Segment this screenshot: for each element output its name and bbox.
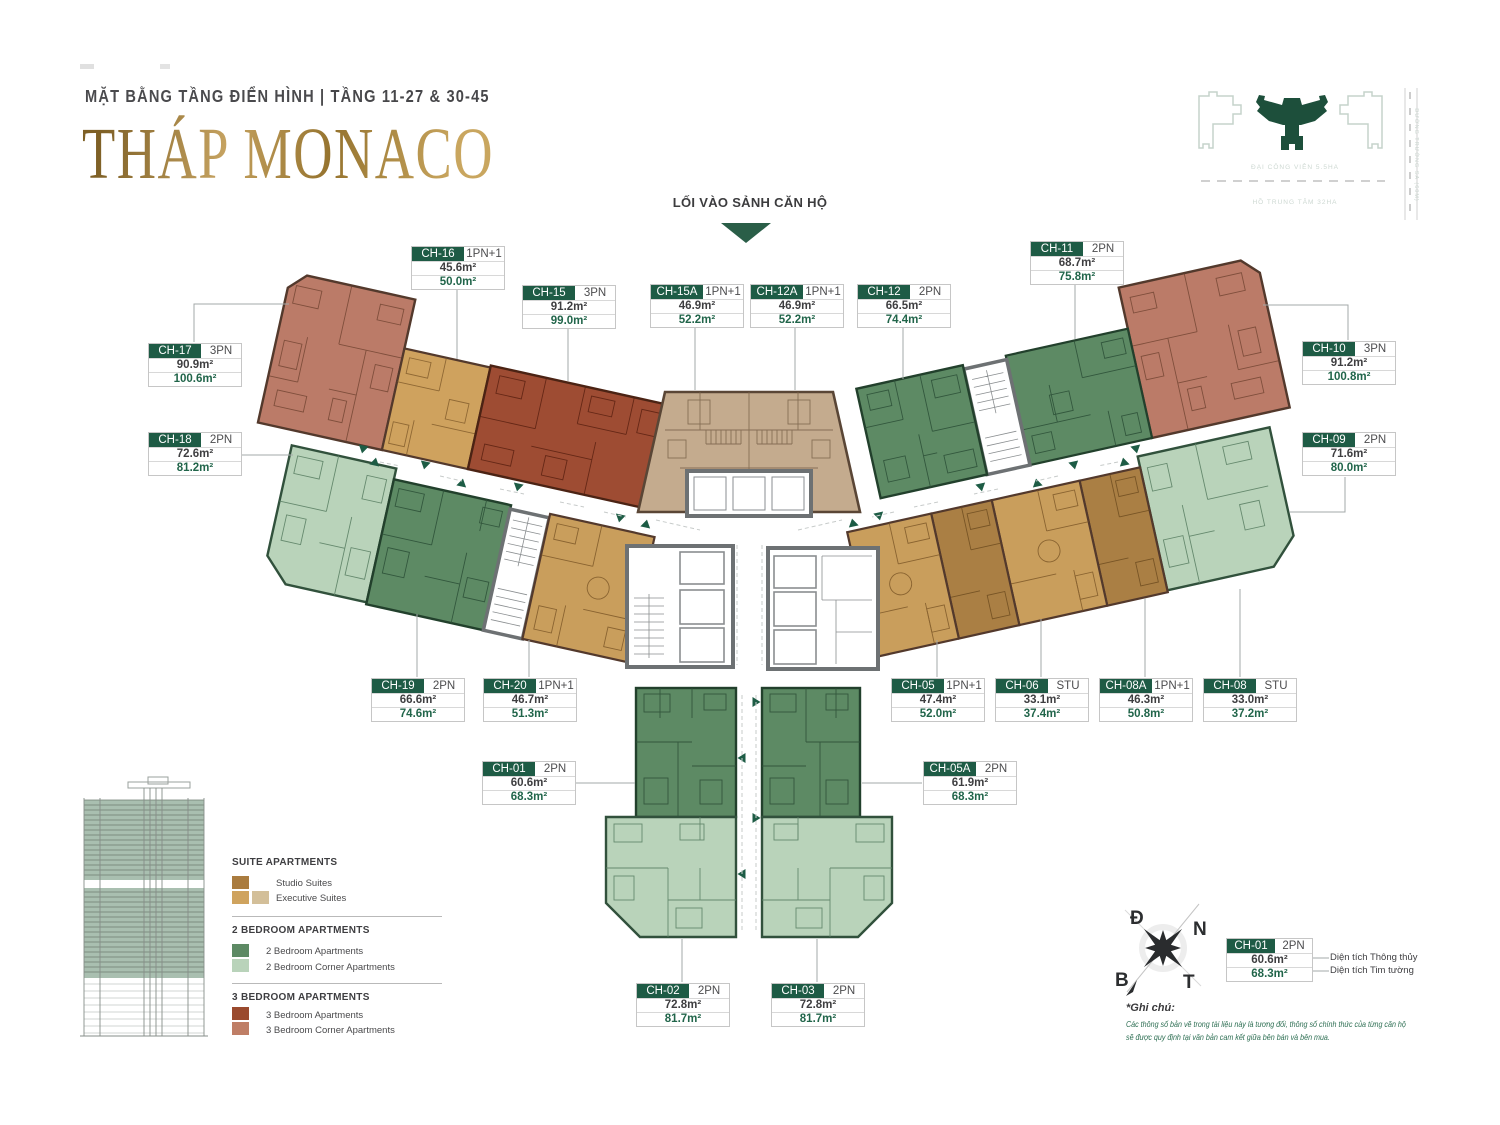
svg-text:T: T: [1183, 972, 1195, 993]
svg-text:N: N: [1193, 919, 1207, 940]
svg-text:Đ: Đ: [1130, 908, 1144, 929]
svg-text:B: B: [1115, 970, 1129, 991]
